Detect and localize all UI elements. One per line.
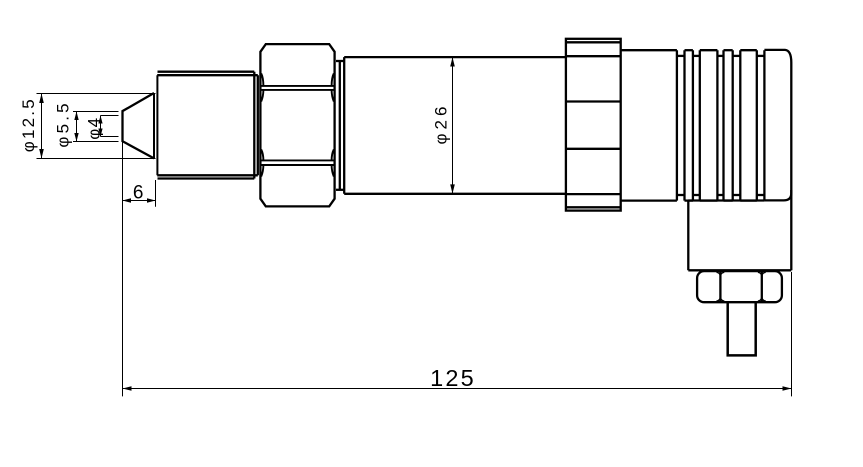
svg-text:φ12.5: φ12.5 [19,97,38,152]
svg-text:φ4: φ4 [84,117,103,140]
svg-text:φ5.5: φ5.5 [53,100,72,147]
svg-text:6: 6 [133,183,144,204]
svg-text:125: 125 [430,365,476,391]
svg-text:φ26: φ26 [432,103,451,145]
